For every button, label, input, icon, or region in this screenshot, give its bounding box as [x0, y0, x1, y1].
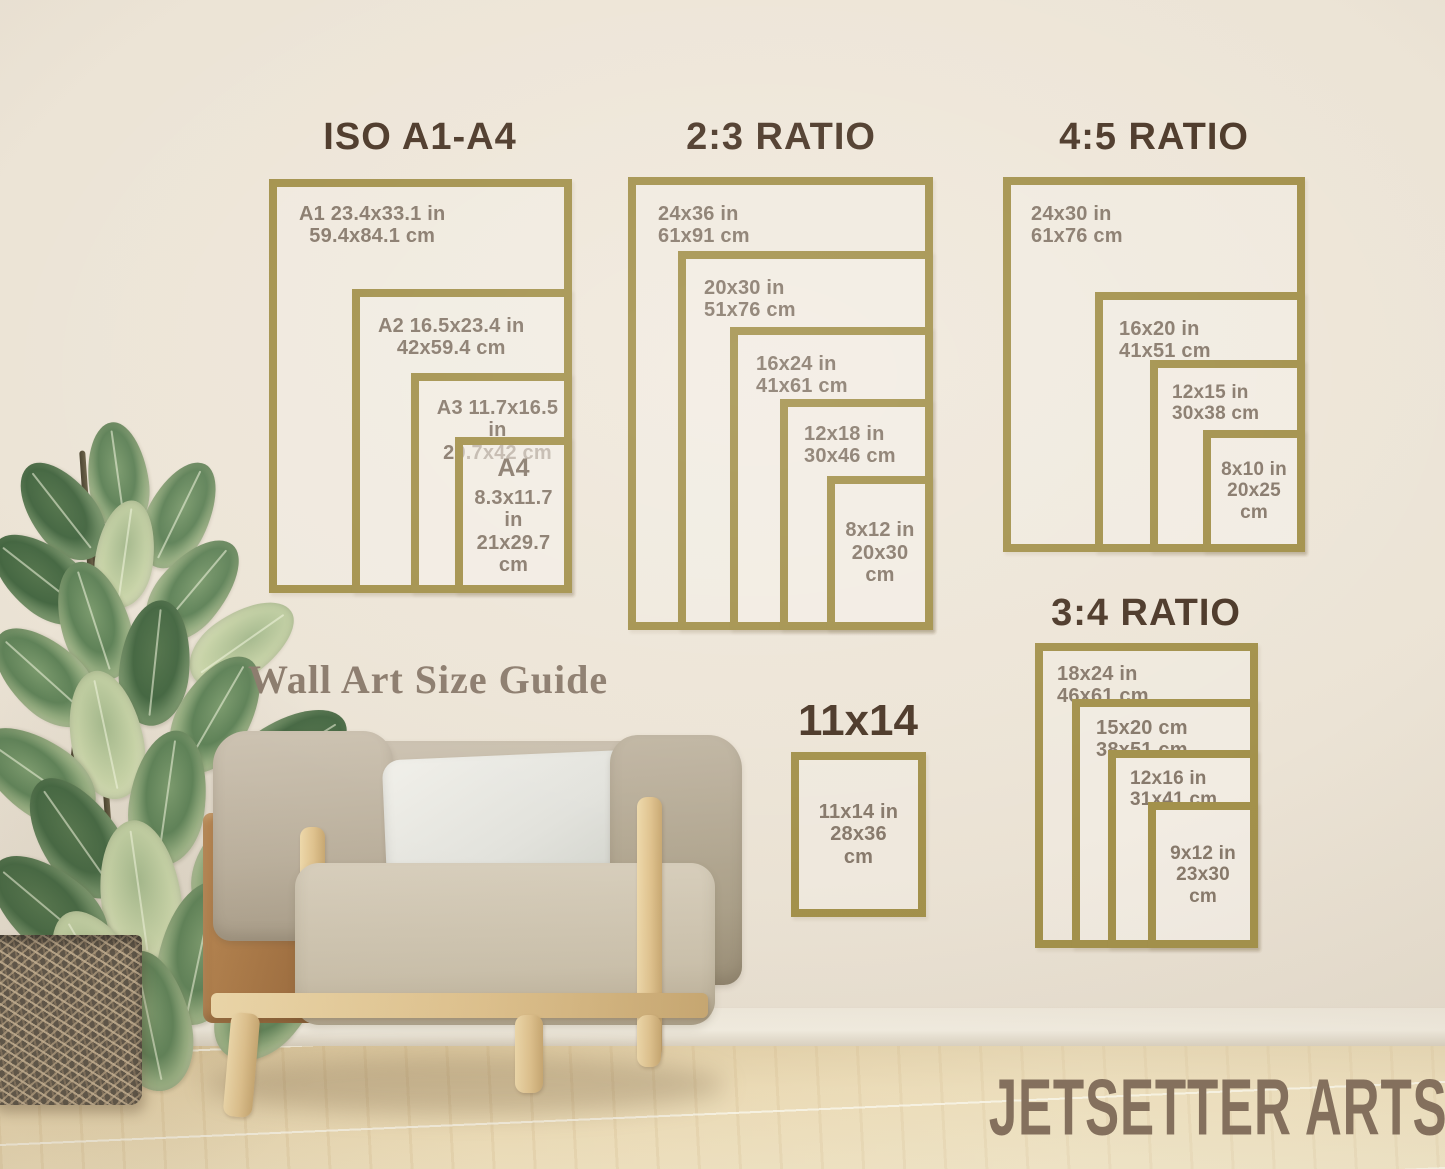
brand-watermark: JETSETTER ARTS — [988, 1061, 1445, 1154]
size-label-line: A1 23.4x33.1 in — [299, 203, 445, 225]
size-label-a1: A1 23.4x33.1 in 59.4x84.1 cm — [299, 203, 445, 248]
section-title-4-5: 4:5 RATIO — [1059, 116, 1249, 159]
size-label-line: 42x59.4 cm — [378, 337, 524, 359]
size-label-12x18: 12x18 in 30x46 cm — [804, 423, 896, 468]
page-title: Wall Art Size Guide — [248, 656, 608, 703]
size-label-line: cm — [499, 554, 528, 576]
size-label-line: cm — [1189, 886, 1217, 907]
size-label-20x30: 20x30 in 51x76 cm — [704, 277, 796, 322]
size-label-line: 15x20 cm — [1096, 717, 1188, 739]
size-label-16x20: 16x20 in 41x51 cm — [1119, 318, 1211, 363]
woven-basket-pot — [0, 935, 142, 1105]
size-label-11x14: 11x14 in 28x36 cm — [799, 760, 918, 909]
size-label-line: 30x46 cm — [804, 445, 896, 467]
wood-rail — [211, 993, 708, 1018]
size-label-8x12: 8x12 in 20x30 cm — [835, 484, 925, 622]
section-title-2-3: 2:3 RATIO — [686, 116, 876, 159]
size-label-line: 20x30 in — [704, 277, 796, 299]
size-label-8x10: 8x10 in 20x25 cm — [1211, 438, 1297, 544]
size-label-line: 28x36 — [830, 823, 887, 845]
size-label-line: 9x12 in — [1170, 843, 1236, 864]
section-title-3-4: 3:4 RATIO — [1051, 592, 1241, 635]
size-label-12x15: 12x15 in 30x38 cm — [1172, 382, 1259, 425]
size-label-9x12: 9x12 in 23x30 cm — [1156, 810, 1250, 940]
size-label-a2: A2 16.5x23.4 in 42x59.4 cm — [378, 315, 524, 360]
size-label-24x30: 24x30 in 61x76 cm — [1031, 203, 1123, 248]
size-label-line: cm — [844, 846, 873, 868]
size-label-line: 16x24 in — [756, 353, 848, 375]
size-label-line: 20x25 — [1227, 480, 1281, 501]
size-label-line: 21x29.7 — [477, 532, 551, 554]
size-label-line: 8.3x11.7 in — [463, 487, 564, 532]
size-label-line: A2 16.5x23.4 in — [378, 315, 524, 337]
section-title-iso: ISO A1-A4 — [323, 116, 516, 159]
size-label-line: 8x10 in — [1221, 459, 1287, 480]
size-label-line: 20x30 — [852, 542, 909, 564]
size-label-line: 24x36 in — [658, 203, 750, 225]
section-title-11x14: 11x14 — [798, 696, 918, 746]
size-label-line: A3 11.7x16.5 in — [431, 397, 564, 442]
size-label-line: 18x24 in — [1057, 663, 1149, 685]
size-frame-8x10: 8x10 in 20x25 cm — [1203, 430, 1305, 552]
size-label-line: 30x38 cm — [1172, 403, 1259, 424]
size-label-line: 24x30 in — [1031, 203, 1123, 225]
size-label-line: 23x30 — [1176, 864, 1230, 885]
size-label-16x24: 16x24 in 41x61 cm — [756, 353, 848, 398]
room-scene: ISO A1-A4 A1 23.4x33.1 in 59.4x84.1 cm A… — [0, 0, 1445, 1169]
chair-leg — [515, 1015, 543, 1093]
size-frame-9x12: 9x12 in 23x30 cm — [1148, 802, 1258, 948]
size-label-line: 61x76 cm — [1031, 225, 1123, 247]
size-label-line: cm — [1240, 502, 1268, 523]
size-frame-11x14: 11x14 in 28x36 cm — [791, 752, 926, 917]
size-label-line: 41x61 cm — [756, 375, 848, 397]
size-label-line: 11x14 in — [819, 801, 898, 823]
size-label-line: 61x91 cm — [658, 225, 750, 247]
size-label-line: cm — [865, 564, 894, 586]
size-frame-8x12: 8x12 in 20x30 cm — [827, 476, 933, 630]
size-label-24x36: 24x36 in 61x91 cm — [658, 203, 750, 248]
size-label-line: 51x76 cm — [704, 299, 796, 321]
size-frame-a4: A4 8.3x11.7 in 21x29.7 cm — [455, 437, 572, 593]
armchair — [185, 725, 755, 1125]
chair-leg — [637, 1015, 661, 1067]
size-label-line: 12x15 in — [1172, 382, 1259, 403]
size-label-line: A4 — [497, 454, 529, 482]
size-label-line: 59.4x84.1 cm — [299, 225, 445, 247]
size-label-a4: A4 8.3x11.7 in 21x29.7 cm — [463, 445, 564, 585]
size-label-line: 8x12 in — [845, 519, 914, 541]
size-label-line: 16x20 in — [1119, 318, 1211, 340]
size-label-line: 12x16 in — [1130, 768, 1217, 789]
size-label-line: 12x18 in — [804, 423, 896, 445]
